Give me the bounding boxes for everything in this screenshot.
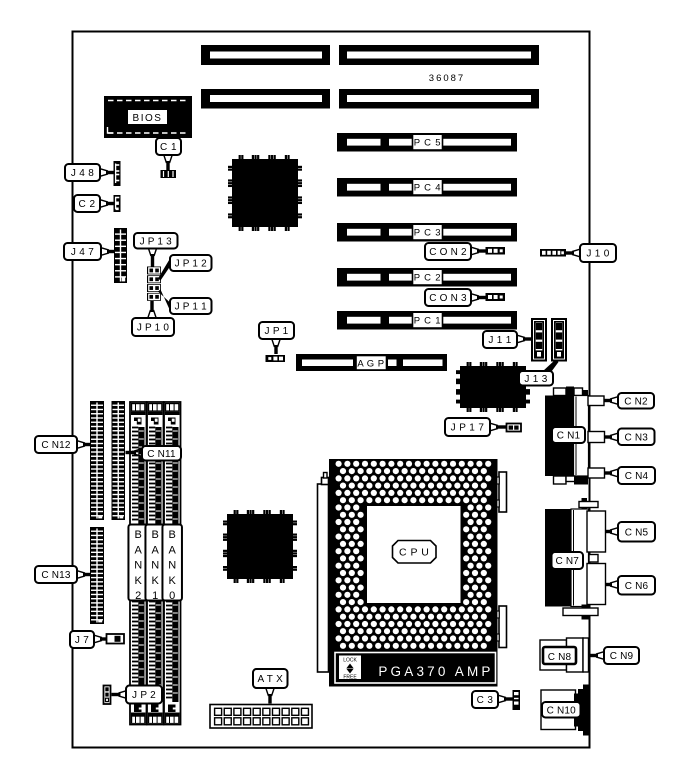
svg-text:C N2: C N2 — [624, 396, 648, 407]
svg-text:PGA370 AMP: PGA370 AMP — [378, 664, 493, 679]
svg-text:B: B — [135, 529, 142, 541]
svg-text:A: A — [152, 544, 160, 556]
svg-text:J P 1: J P 1 — [264, 326, 288, 337]
svg-text:C 3: C 3 — [477, 695, 494, 706]
svg-text:K: K — [169, 575, 177, 587]
svg-text:P C 3: P C 3 — [414, 228, 442, 239]
svg-text:C N10: C N10 — [547, 705, 577, 716]
svg-text:2: 2 — [135, 590, 141, 602]
svg-text:B: B — [169, 529, 176, 541]
svg-text:C N7: C N7 — [555, 556, 579, 567]
svg-text:C N8: C N8 — [548, 652, 572, 663]
svg-text:J P 1 7: J P 1 7 — [451, 423, 485, 434]
svg-text:J P 1 3: J P 1 3 — [140, 236, 173, 247]
svg-text:J P 1 0: J P 1 0 — [137, 323, 170, 334]
svg-text:K: K — [135, 575, 143, 587]
svg-text:BIOS: BIOS — [133, 113, 163, 124]
svg-text:J 4 7: J 4 7 — [71, 247, 94, 258]
svg-text:N: N — [134, 560, 142, 572]
svg-text:J 1 1: J 1 1 — [488, 335, 511, 346]
svg-text:P C 2: P C 2 — [414, 273, 442, 284]
svg-text:K: K — [152, 575, 160, 587]
svg-text:C N12: C N12 — [41, 440, 71, 451]
svg-text:N: N — [151, 560, 159, 572]
svg-text:C O N 2: C O N 2 — [429, 247, 467, 258]
svg-text:A: A — [169, 544, 177, 556]
svg-text:B: B — [152, 529, 159, 541]
svg-text:J 1 0: J 1 0 — [586, 249, 609, 260]
svg-text:J P 2: J P 2 — [132, 690, 156, 701]
svg-text:P C 1: P C 1 — [414, 316, 442, 327]
svg-text:A: A — [135, 544, 143, 556]
svg-text:P C 4: P C 4 — [414, 183, 442, 194]
svg-text:J 4 8: J 4 8 — [71, 168, 94, 179]
svg-text:A G P: A G P — [357, 359, 384, 370]
svg-text:C 2: C 2 — [78, 199, 95, 210]
svg-text:LOCK: LOCK — [343, 658, 357, 664]
svg-text:C N3: C N3 — [624, 432, 648, 443]
svg-text:J 1 3: J 1 3 — [524, 374, 547, 385]
svg-text:P C 5: P C 5 — [414, 138, 442, 149]
svg-text:C N1: C N1 — [557, 431, 581, 442]
svg-text:J P 1 1: J P 1 1 — [175, 302, 208, 313]
svg-text:C O N 3: C O N 3 — [429, 293, 467, 304]
svg-text:N: N — [168, 560, 176, 572]
svg-text:A T X: A T X — [257, 674, 283, 685]
svg-text:C 1: C 1 — [160, 142, 177, 153]
svg-text:1: 1 — [152, 590, 158, 602]
svg-text:36087: 36087 — [429, 73, 465, 84]
svg-text:C N9: C N9 — [610, 651, 634, 662]
svg-text:C N5: C N5 — [625, 527, 649, 538]
svg-text:C N11: C N11 — [147, 449, 176, 460]
svg-text:FREE: FREE — [343, 674, 357, 680]
svg-text:J 7: J 7 — [75, 635, 89, 646]
svg-text:0: 0 — [169, 590, 175, 602]
svg-text:C N6: C N6 — [625, 581, 649, 592]
svg-text:C P U: C P U — [399, 547, 429, 559]
svg-text:C N4: C N4 — [625, 471, 649, 482]
svg-text:C N13: C N13 — [41, 570, 71, 581]
svg-text:J P 1 2: J P 1 2 — [175, 259, 208, 270]
